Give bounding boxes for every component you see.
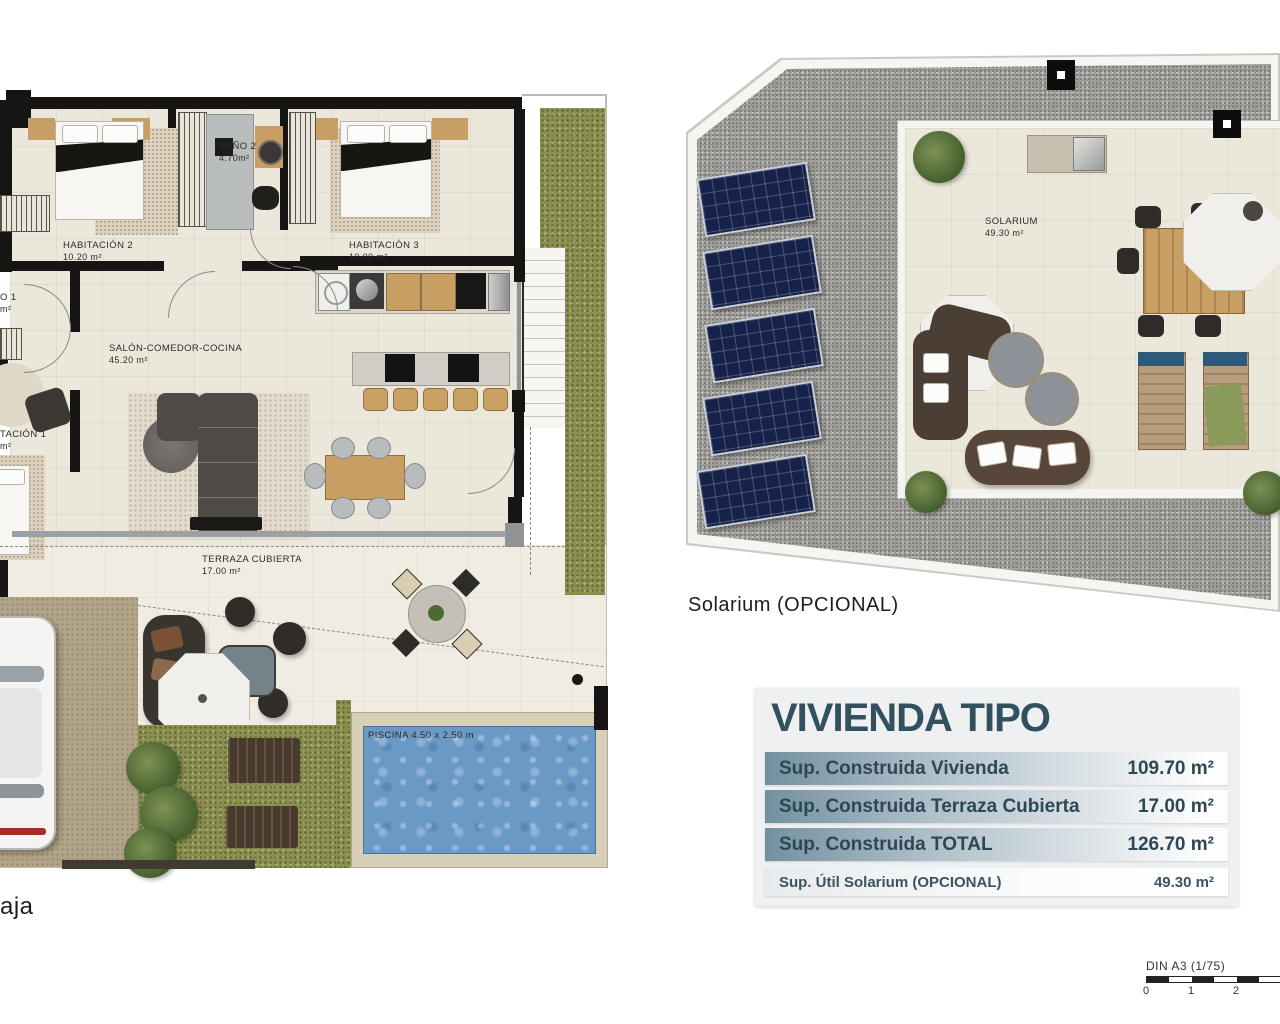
summary-row-solarium: Sup. Útil Solarium (OPCIONAL) 49.30 m² [765, 868, 1228, 896]
car-tail-lights [0, 828, 46, 835]
pool-side-grass [336, 700, 351, 866]
roof-marker-1 [1047, 60, 1075, 90]
lounge-cushion-2 [923, 383, 949, 403]
ground-floor-plan: HABITACIÓN 210.20 m² BAÑO 24.70m² HABITA… [0, 0, 640, 1024]
hab3-bed [340, 121, 432, 218]
dining-chair-1 [331, 437, 355, 459]
bano2-label: BAÑO 24.70m² [219, 141, 256, 165]
wall-right-lower [514, 412, 524, 497]
hab2-wardrobe [178, 112, 207, 227]
summary-row-total-label: Sup. Construida TOTAL [779, 834, 993, 856]
summary-row-terraza: Sup. Construida Terraza Cubierta 17.00 m… [765, 790, 1228, 823]
parasol-dining-pole [1243, 201, 1263, 221]
wall-right-jamb [508, 497, 522, 523]
stool-1 [363, 388, 388, 411]
solarium-chair-4 [1195, 315, 1221, 337]
interior-stair [0, 195, 50, 232]
stool-2 [393, 388, 418, 411]
plot-boundary-top [522, 94, 607, 96]
hab3-wardrobe [289, 112, 316, 224]
wall-left-upper [0, 100, 12, 272]
summary-row-total: Sup. Construida TOTAL 126.70 m² [765, 828, 1228, 861]
summary-row-terraza-value: 17.00 m² [1138, 796, 1214, 818]
hab2-pillow-2 [102, 125, 138, 143]
scale-tick-2: 2 [1233, 985, 1239, 997]
car-rear-window [0, 784, 44, 798]
kitchen-cabinet-2 [421, 273, 456, 311]
garden-strip-right [540, 108, 605, 248]
hab3-pillow-2 [389, 125, 427, 143]
bano2-basin [258, 140, 283, 165]
summary-row-solarium-label: Sup. Útil Solarium (OPCIONAL) [779, 874, 1002, 891]
solarium-lounger-1-headrest [1138, 352, 1184, 366]
scale-tick-1: 1 [1188, 985, 1194, 997]
car-roof [0, 688, 42, 778]
car-windshield [0, 666, 44, 682]
hab2-duvet-fold [56, 139, 143, 172]
pool-corner-post [594, 686, 608, 730]
lounge-cushion-5 [1047, 442, 1077, 467]
pool-label: PISCINA 4.50 x 2.50 m [368, 730, 474, 742]
bano2-toilet [252, 186, 279, 210]
scale-bar-label: DIN A3 (1/75) [1146, 959, 1280, 973]
summary-row-total-value: 126.70 m² [1127, 834, 1214, 856]
solarium-caption: Solarium (OPCIONAL) [688, 594, 899, 617]
pool-water [363, 726, 596, 854]
terrace-dashed-vertical [530, 427, 531, 575]
summary-table-title: VIVIENDA TIPO [771, 696, 1050, 741]
ground-floor-caption-fragment: aja [0, 893, 34, 921]
hab3-label: HABITACIÓN 310.00 m² [349, 240, 419, 264]
summary-row-vivienda-value: 109.70 m² [1127, 758, 1214, 780]
covered-terrace-dashed-line [0, 546, 600, 547]
bano1-label-fragment: O 1m² [0, 292, 17, 316]
hab3-pillow-1 [347, 125, 385, 143]
outdoor-shower-dot [572, 674, 583, 685]
sun-lounger-1 [228, 738, 300, 783]
stool-3 [423, 388, 448, 411]
solarium-bush-1 [905, 471, 947, 513]
oven [350, 273, 384, 309]
wall-hall-1 [70, 262, 80, 332]
pouf-2 [273, 622, 306, 655]
hab3-nightstand-right [432, 118, 468, 140]
terraza-label: TERRAZA CUBIERTA17.00 m² [202, 554, 302, 578]
corner-connector [505, 523, 524, 547]
hab2-nightstand-left [28, 118, 55, 140]
wall-top [12, 97, 522, 109]
hab2-shower [206, 114, 254, 230]
fridge [488, 273, 510, 311]
roof-marker-2 [1213, 110, 1241, 138]
dining-chair-3 [331, 497, 355, 519]
scale-tick-0: 0 [1143, 985, 1149, 997]
lounge-cushion-1 [923, 353, 949, 373]
wall-hall-2 [70, 390, 80, 472]
garden-strip-right-2 [565, 248, 605, 595]
summary-row-terraza-label: Sup. Construida Terraza Cubierta [779, 796, 1080, 818]
solarium-lounger-1 [1138, 352, 1186, 450]
hab1-pillow [0, 469, 25, 485]
hab1-wardrobe [0, 328, 22, 360]
dining-chair-6 [404, 463, 426, 489]
solarium-tree [913, 131, 965, 183]
hob-2 [448, 354, 479, 382]
summary-row-vivienda: Sup. Construida Vivienda 109.70 m² [765, 752, 1228, 785]
solarium-lounger-towel [1203, 383, 1247, 447]
solarium-plan: SOLARIUM49.30 m² [683, 53, 1280, 615]
terrace-table-plant [428, 605, 444, 621]
tv-sideboard [190, 517, 262, 530]
wall-right-post [512, 390, 525, 412]
oven-door [356, 279, 378, 301]
palm-3 [124, 828, 176, 878]
garden-wall-bottom [62, 860, 255, 869]
hab2-bed [55, 121, 144, 220]
kitchen-cabinet-1 [386, 273, 421, 311]
hab1-label-fragment: TACIÓN 1m² [0, 429, 46, 453]
summary-row-solarium-value: 49.30 m² [1154, 874, 1214, 891]
summary-row-vivienda-label: Sup. Construida Vivienda [779, 758, 1009, 780]
hab2-label: HABITACIÓN 210.20 m² [63, 240, 133, 264]
car [0, 616, 56, 850]
stool-4 [453, 388, 478, 411]
window-right [517, 282, 521, 390]
solarium-sink [1073, 137, 1105, 171]
solarium-lounger-2 [1203, 352, 1249, 450]
solarium-chair-3 [1138, 315, 1164, 337]
exterior-staircase [522, 248, 566, 428]
solarium-lounger-2-headrest [1203, 352, 1247, 366]
kitchen-tall-unit [456, 273, 486, 309]
hab1-bed [0, 465, 30, 555]
solarium-chair-5 [1117, 248, 1139, 274]
solarium-label: SOLARIUM49.30 m² [985, 216, 1038, 240]
dining-chair-5 [304, 463, 326, 489]
sun-lounger-2 [226, 806, 298, 848]
stool-5 [483, 388, 508, 411]
salon-label: SALÓN-COMEDOR-COCINA45.20 m² [109, 343, 242, 367]
sofa-chaise [157, 393, 201, 441]
brochure-page: HABITACIÓN 210.20 m² BAÑO 24.70m² HABITA… [0, 0, 1280, 1024]
hob-1 [385, 354, 415, 382]
hab3-nightstand-left [316, 118, 338, 140]
dining-table [325, 455, 405, 500]
sofa-main [198, 393, 258, 537]
pouf-1 [225, 597, 255, 627]
parasol-terrace-pole [198, 694, 207, 703]
kitchen-island [352, 352, 510, 386]
lounge-cushion-4 [1012, 444, 1043, 470]
solarium-chair-1 [1135, 206, 1161, 228]
hab3-duvet-fold [341, 139, 431, 171]
dining-chair-2 [367, 437, 391, 459]
summary-table: VIVIENDA TIPO Sup. Construida Vivienda 1… [755, 688, 1238, 906]
solarium-bush-2 [1243, 471, 1280, 515]
scale-bar: DIN A3 (1/75) 0 1 2 [1146, 959, 1280, 999]
hab2-pillow-1 [62, 125, 98, 143]
scale-bar-ticks: 0 1 2 [1146, 976, 1280, 996]
dining-chair-4 [367, 497, 391, 519]
rattan-table-2 [1025, 372, 1079, 426]
sliding-glass-wall [12, 531, 506, 537]
